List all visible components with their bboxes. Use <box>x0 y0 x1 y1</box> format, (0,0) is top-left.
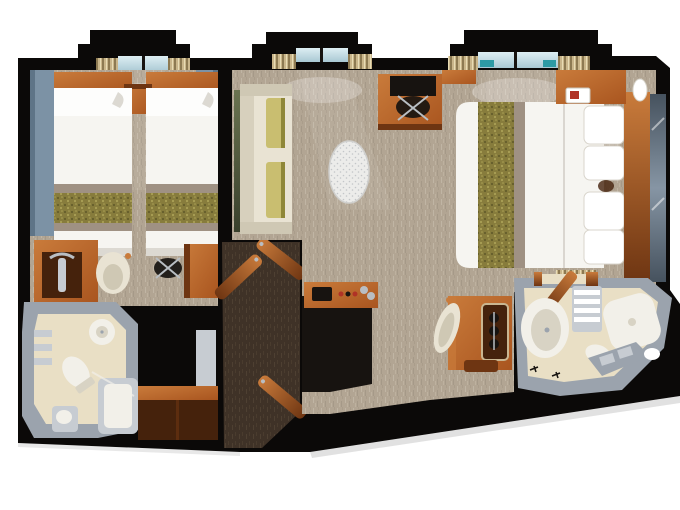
entry-corridor <box>213 236 309 448</box>
bottle <box>339 292 344 297</box>
minibar-console <box>302 282 378 392</box>
desk-tv <box>390 76 436 96</box>
wall-cabinet <box>442 70 476 84</box>
rolled-towel <box>574 317 600 322</box>
hall-closet-top <box>138 386 218 400</box>
window-teal-accent <box>480 60 494 67</box>
rolled-towel <box>574 290 600 295</box>
bathroom-left-shelves <box>34 330 52 365</box>
espresso-machine <box>312 287 332 301</box>
twin-bed-1 <box>54 88 132 256</box>
master-desk <box>378 74 442 130</box>
bottle <box>353 292 358 297</box>
queen-headboard <box>624 92 650 282</box>
curtain <box>558 56 590 72</box>
rolled-towel <box>574 308 600 313</box>
curtain <box>272 54 296 69</box>
twin-bed-2-band <box>146 223 218 231</box>
window-mullion <box>514 52 517 68</box>
shelf <box>34 330 52 337</box>
minibar-base <box>302 296 372 392</box>
twin-bed-2 <box>146 88 218 256</box>
round-shower <box>521 298 569 358</box>
queen-bed-runner <box>478 102 514 268</box>
desk-edge <box>378 124 442 130</box>
armchair-seat <box>103 264 123 290</box>
wardrobe-hanger <box>58 258 66 292</box>
pillow-gap <box>598 180 614 192</box>
pillow <box>584 146 624 180</box>
curtain <box>348 54 372 69</box>
mirror-panel <box>650 94 666 282</box>
curtain <box>448 56 478 72</box>
desk-edge <box>184 244 190 298</box>
rolled-towel <box>574 299 600 304</box>
window-teal-accent <box>543 60 556 67</box>
door-frame <box>586 272 598 286</box>
hall-closet-divider <box>176 400 179 440</box>
shelf <box>34 358 52 365</box>
towel-stack <box>572 286 602 332</box>
shower-drain <box>545 328 550 333</box>
closet-side-panel <box>196 330 216 390</box>
bathroom-left <box>22 302 138 438</box>
twin-bed-2-runner <box>146 193 218 223</box>
bathtub-basin <box>104 384 132 428</box>
sofa-armrest <box>240 222 292 234</box>
armchair-knob <box>125 253 131 259</box>
window-mullion <box>320 48 323 62</box>
twin-bed-1-band <box>54 184 132 193</box>
wardrobe <box>34 240 98 304</box>
pillow <box>584 230 624 264</box>
wall-panel-left-edge <box>30 70 35 236</box>
canister <box>367 292 375 300</box>
sofa-back <box>240 84 254 234</box>
washbasin <box>89 319 115 345</box>
window-mullion <box>142 56 145 72</box>
twin-bed-1-runner <box>54 193 132 223</box>
floor-plan-stage <box>0 0 680 510</box>
sofa-pillow-edge <box>281 162 285 218</box>
door-frame <box>534 272 542 286</box>
queen-bed-band <box>514 102 525 268</box>
pillow <box>584 106 624 144</box>
twin-bed-1-band <box>54 223 132 231</box>
pillow <box>584 192 624 230</box>
bathtub-left <box>92 372 138 434</box>
towels <box>644 348 660 360</box>
oval-rug <box>329 141 369 203</box>
sofa-armrest <box>240 84 292 96</box>
floor-plan-svg <box>0 0 680 510</box>
bottle <box>346 292 351 297</box>
hangers <box>489 312 499 350</box>
sofa-pillow-edge <box>281 98 285 148</box>
twin-bedroom <box>30 70 218 306</box>
pedestal-bowl <box>56 410 72 424</box>
queen-bed <box>456 92 666 282</box>
washbasin-drain <box>100 330 103 333</box>
twin-bed-2-band <box>146 184 218 193</box>
canister <box>360 286 368 294</box>
sofa <box>240 84 292 234</box>
pedestal-sink <box>52 406 78 432</box>
bench <box>464 360 498 372</box>
chair-knob <box>446 297 452 303</box>
shelf <box>34 344 52 351</box>
telephone-screen <box>570 91 579 99</box>
oval-rug-body <box>329 141 369 203</box>
table-lamp <box>633 79 647 101</box>
